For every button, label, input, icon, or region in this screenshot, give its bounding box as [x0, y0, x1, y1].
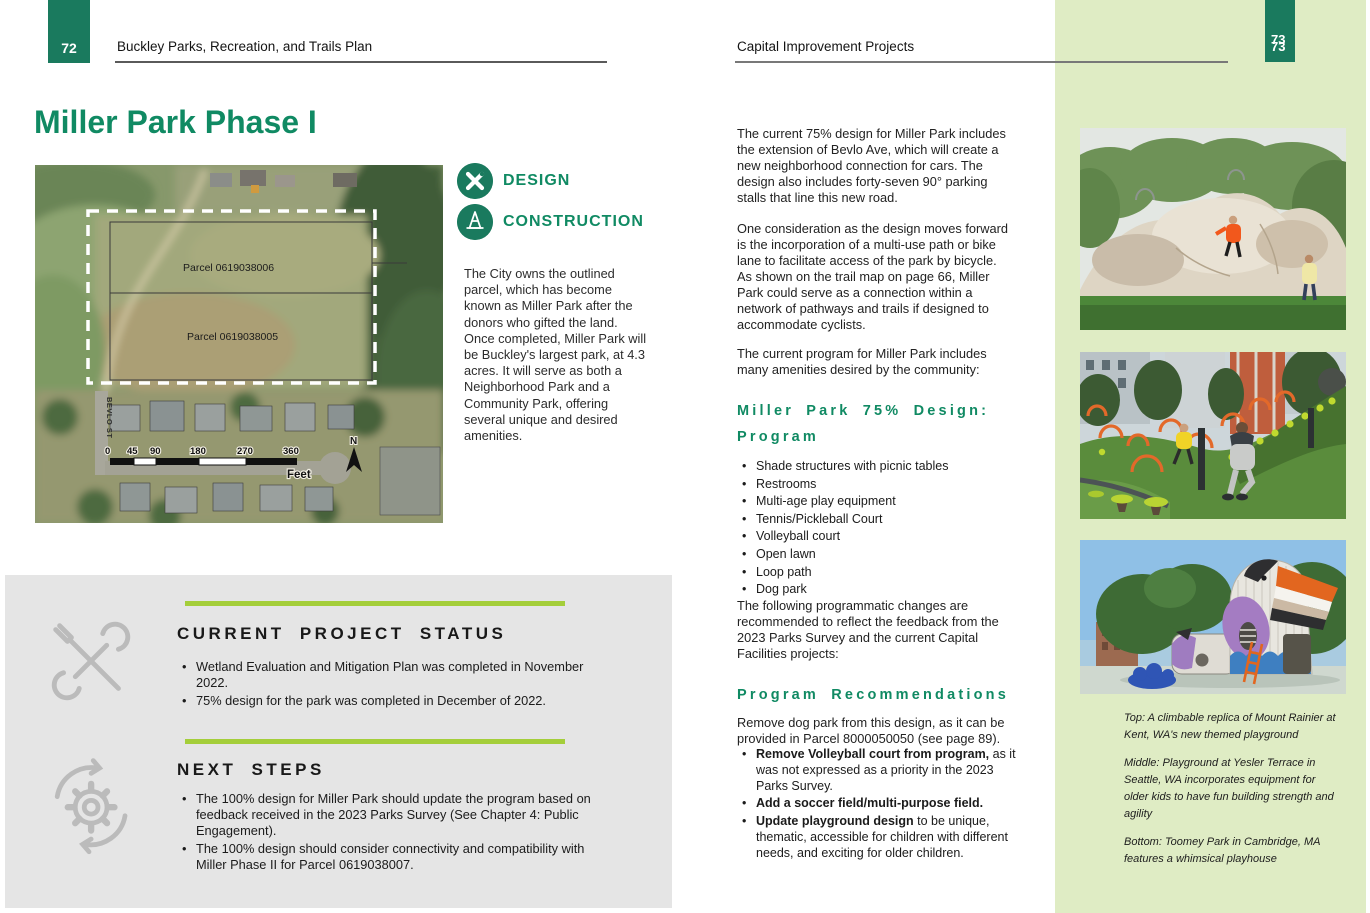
street-label: BEVLO ST — [105, 397, 114, 439]
tag-construction: CONSTRUCTION — [457, 204, 644, 240]
photo-playground-hill — [1080, 352, 1346, 519]
body-paragraph: The current 75% design for Miller Park i… — [737, 126, 1013, 206]
aerial-parcel-map: Parcel 0619038006 Parcel 0619038005 BEVL… — [35, 165, 443, 523]
header-rule-right — [735, 61, 1228, 63]
list-item: 75% design for the park was completed in… — [177, 693, 592, 709]
body-paragraph: One consideration as the design moves fo… — [737, 221, 1013, 333]
list-item: Open lawn — [737, 547, 1013, 563]
scale-bar — [110, 458, 297, 465]
svg-text:90: 90 — [150, 446, 161, 457]
page-number-tab-left: 72 — [48, 0, 90, 63]
svg-text:360: 360 — [283, 446, 299, 457]
header-rule-left — [115, 61, 607, 63]
construction-cone-icon — [457, 204, 493, 240]
accent-rule-current — [185, 601, 565, 606]
parcel-label-1: Parcel 0619038006 — [183, 262, 274, 274]
design-label: DESIGN — [503, 172, 570, 190]
tag-design: DESIGN — [457, 163, 570, 199]
page-number-left: 72 — [48, 40, 90, 56]
list-item: Restrooms — [737, 477, 1013, 493]
intro-paragraph: The City owns the outlined parcel, which… — [464, 266, 650, 444]
svg-text:270: 270 — [237, 446, 253, 457]
scale-unit-label: Feet — [287, 469, 311, 481]
svg-text:0: 0 — [105, 446, 110, 457]
list-item: Volleyball court — [737, 529, 1013, 545]
construction-label: CONSTRUCTION — [503, 213, 644, 231]
list-item: The 100% design for Miller Park should u… — [177, 791, 592, 839]
body-paragraph: The following programmatic changes are r… — [737, 598, 1013, 662]
list-item: Remove Volleyball court from program, as… — [737, 747, 1017, 794]
list-item: Dog park — [737, 582, 1013, 598]
caption-top: Top: A climbable replica of Mount Rainie… — [1124, 710, 1340, 744]
tools-icon — [42, 612, 140, 710]
current-status-heading: CURRENT PROJECT STATUS — [177, 624, 506, 644]
document-spread: 72 73 73 Buckley Parks, Recreation, and … — [0, 0, 1370, 913]
running-header-left: Buckley Parks, Recreation, and Trails Pl… — [117, 39, 372, 54]
page-number-right-ghost: 73 — [1271, 39, 1285, 54]
list-item: The 100% design should consider connecti… — [177, 841, 592, 873]
page-title: Miller Park Phase I — [34, 104, 317, 141]
design-tools-icon — [457, 163, 493, 199]
list-item: Loop path — [737, 565, 1013, 581]
svg-text:45: 45 — [127, 446, 138, 457]
current-status-list: Wetland Evaluation and Mitigation Plan w… — [177, 659, 592, 711]
caption-bottom: Bottom: Toomey Park in Cambridge, MA fea… — [1124, 834, 1340, 868]
svg-text:N: N — [350, 436, 357, 447]
svg-text:180: 180 — [190, 446, 206, 457]
next-steps-heading: NEXT STEPS — [177, 760, 325, 780]
next-steps-list: The 100% design for Miller Park should u… — [177, 791, 592, 875]
program-heading: Miller Park 75% Design: Program — [737, 398, 989, 450]
photo-bird-playhouse — [1080, 540, 1346, 694]
accent-rule-next — [185, 739, 565, 744]
page-number-tab-right: 73 73 — [1265, 0, 1295, 62]
parcel-label-2: Parcel 0619038005 — [187, 331, 278, 343]
recommendations-heading: Program Recommendations — [737, 682, 1009, 708]
list-item: Update playground design to be unique, t… — [737, 814, 1017, 861]
recommendations-list: Remove Volleyball court from program, as… — [737, 747, 1017, 864]
recommendations-intro: Remove dog park from this design, as it … — [737, 715, 1013, 747]
list-item: Add a soccer field/multi-purpose field. — [737, 796, 1017, 812]
gear-refresh-icon — [36, 750, 142, 856]
photo-climbing-rocks — [1080, 128, 1346, 330]
caption-middle: Middle: Playground at Yesler Terrace in … — [1124, 755, 1340, 823]
list-item: Multi-age play equipment — [737, 494, 1013, 510]
program-list: Shade structures with picnic tables Rest… — [737, 459, 1013, 600]
running-header-right: Capital Improvement Projects — [737, 39, 914, 54]
photo-captions: Top: A climbable replica of Mount Rainie… — [1124, 710, 1340, 879]
list-item: Wetland Evaluation and Mitigation Plan w… — [177, 659, 592, 691]
body-paragraph: The current program for Miller Park incl… — [737, 346, 1013, 378]
list-item: Shade structures with picnic tables — [737, 459, 1013, 475]
list-item: Tennis/Pickleball Court — [737, 512, 1013, 528]
